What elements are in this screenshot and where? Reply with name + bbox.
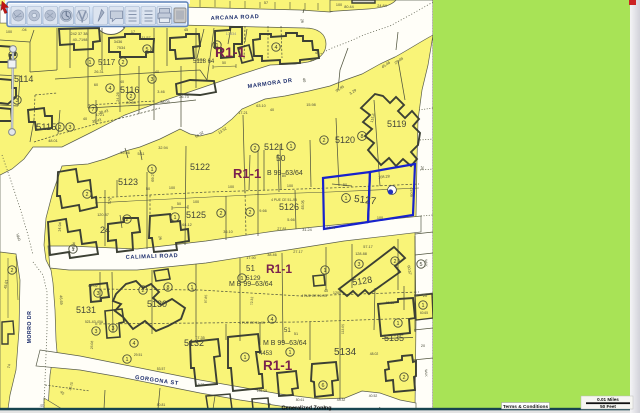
svg-text:45: 45 <box>184 28 188 32</box>
svg-text:8: 8 <box>361 134 364 140</box>
svg-text:5125: 5125 <box>186 210 206 220</box>
svg-text:40: 40 <box>324 289 328 293</box>
svg-text:60.57: 60.57 <box>410 187 415 197</box>
svg-text:26.08: 26.08 <box>90 341 94 350</box>
svg-text:5131: 5131 <box>76 305 96 315</box>
svg-text:29.51: 29.51 <box>134 353 143 357</box>
svg-text:100: 100 <box>193 200 199 204</box>
svg-text:74: 74 <box>7 364 12 369</box>
svg-text:1: 1 <box>244 355 247 361</box>
svg-text:2: 2 <box>59 125 62 131</box>
svg-text:2: 2 <box>220 211 223 217</box>
svg-text:120.87: 120.87 <box>97 213 109 217</box>
svg-text:26: 26 <box>300 19 305 24</box>
svg-text:4453: 4453 <box>259 351 273 357</box>
svg-text:MORRO DR: MORRO DR <box>27 311 33 344</box>
svg-text:50: 50 <box>222 61 226 65</box>
svg-text:4: 4 <box>275 45 278 51</box>
svg-text:4 PUE CE 51–95: 4 PUE CE 51–95 <box>301 294 327 298</box>
svg-text:11.57: 11.57 <box>141 36 150 40</box>
svg-text:5119: 5119 <box>387 119 406 129</box>
svg-text:100: 100 <box>287 184 293 188</box>
svg-text:17: 17 <box>131 30 135 34</box>
svg-text:3: 3 <box>151 77 154 83</box>
svg-text:5130: 5130 <box>147 299 167 309</box>
svg-text:48.02: 48.02 <box>370 352 379 356</box>
svg-text:100: 100 <box>377 216 383 220</box>
svg-text:1: 1 <box>324 268 327 274</box>
svg-text:1: 1 <box>126 357 129 363</box>
svg-text:Generalized Zoning: Generalized Zoning <box>281 405 331 411</box>
svg-text:3.46: 3.46 <box>157 90 164 94</box>
svg-text:5.11: 5.11 <box>137 152 144 156</box>
svg-text:1721: 1721 <box>96 113 104 117</box>
svg-text:2: 2 <box>323 138 326 144</box>
svg-text:1: 1 <box>397 321 400 327</box>
svg-text:R1-1: R1-1 <box>215 44 246 60</box>
svg-text:24.26: 24.26 <box>116 92 120 102</box>
svg-text:26.73: 26.73 <box>179 95 189 99</box>
svg-text:523–63–05A: 523–63–05A <box>85 320 104 324</box>
svg-text:113.05: 113.05 <box>341 324 345 334</box>
svg-text:4: 4 <box>109 86 112 92</box>
svg-text:9.66: 9.66 <box>259 209 266 213</box>
svg-text:50: 50 <box>343 183 347 187</box>
svg-text:2: 2 <box>254 146 257 152</box>
svg-text:M B 99–63/64: M B 99–63/64 <box>263 340 307 347</box>
svg-text:62.02: 62.02 <box>88 284 98 288</box>
svg-text:64.12: 64.12 <box>182 223 192 227</box>
svg-text:2: 2 <box>11 268 14 274</box>
svg-text:32.94: 32.94 <box>158 146 168 150</box>
svg-text:24: 24 <box>100 225 110 235</box>
svg-text:2: 2 <box>403 375 406 381</box>
svg-text:128.88: 128.88 <box>355 252 367 256</box>
svg-text:17.21: 17.21 <box>238 111 248 115</box>
svg-text:05.84: 05.84 <box>196 58 205 62</box>
svg-text:3: 3 <box>112 326 115 332</box>
svg-text:M B 99–63/64: M B 99–63/64 <box>229 281 273 288</box>
svg-text:60: 60 <box>94 83 98 87</box>
svg-text:43.32: 43.32 <box>337 398 346 402</box>
svg-text:31.24: 31.24 <box>302 228 312 232</box>
svg-text:40: 40 <box>310 58 314 62</box>
svg-text:100: 100 <box>228 185 234 189</box>
svg-text:20.89: 20.89 <box>126 101 136 105</box>
svg-text:80.44: 80.44 <box>344 5 354 9</box>
svg-text:46.65: 46.65 <box>59 295 64 305</box>
svg-text:38.05: 38.05 <box>160 100 170 104</box>
svg-text:4.84: 4.84 <box>72 242 77 250</box>
svg-text:3: 3 <box>358 262 361 268</box>
svg-text:80: 80 <box>282 174 286 178</box>
svg-text:80.81: 80.81 <box>157 403 166 407</box>
svg-text:242 37 38: 242 37 38 <box>71 32 88 36</box>
svg-text:14.94: 14.94 <box>58 222 63 232</box>
svg-text:2: 2 <box>86 192 89 198</box>
svg-text:1: 1 <box>422 303 425 309</box>
svg-text:36.10: 36.10 <box>223 230 233 234</box>
svg-text:38.46: 38.46 <box>267 253 277 257</box>
svg-text:80.61: 80.61 <box>296 398 305 402</box>
svg-text:51: 51 <box>284 328 291 334</box>
svg-text:20: 20 <box>423 294 427 298</box>
svg-text:40: 40 <box>40 403 45 408</box>
svg-text:20: 20 <box>421 344 425 348</box>
svg-text:50: 50 <box>146 187 150 191</box>
svg-text:48.05: 48.05 <box>301 200 305 210</box>
svg-text:3: 3 <box>69 125 72 131</box>
svg-text:1: 1 <box>345 196 348 202</box>
svg-text:39.56: 39.56 <box>120 151 130 155</box>
svg-text:17834: 17834 <box>226 32 237 36</box>
svg-text:45: 45 <box>315 51 319 55</box>
svg-text:5134: 5134 <box>334 347 357 358</box>
svg-text:40.52: 40.52 <box>369 394 378 398</box>
svg-text:50: 50 <box>276 153 286 163</box>
svg-text:32.47: 32.47 <box>326 226 336 230</box>
svg-text:1: 1 <box>174 215 177 221</box>
svg-text:2: 2 <box>394 259 397 265</box>
svg-text:40: 40 <box>270 108 274 112</box>
svg-text:131.05: 131.05 <box>257 389 267 393</box>
svg-text:1: 1 <box>191 285 194 291</box>
svg-text:0.01 Miles: 0.01 Miles <box>597 397 619 402</box>
svg-text:9.32: 9.32 <box>198 383 205 387</box>
svg-text:1: 1 <box>151 167 154 173</box>
svg-text:5: 5 <box>420 262 423 268</box>
svg-text:72.32: 72.32 <box>250 297 254 306</box>
svg-text:5117: 5117 <box>98 58 116 67</box>
svg-text:120: 120 <box>333 291 339 295</box>
svg-text:4: 4 <box>271 317 274 323</box>
svg-text:53.57: 53.57 <box>157 367 166 371</box>
svg-text:90.65: 90.65 <box>386 301 394 305</box>
svg-text:51: 51 <box>294 332 298 336</box>
svg-text:100: 100 <box>169 186 175 190</box>
svg-text:3: 3 <box>97 291 100 297</box>
svg-text:.04: .04 <box>21 28 26 32</box>
svg-text:R1-1: R1-1 <box>266 262 292 276</box>
svg-text:5121: 5121 <box>264 142 284 152</box>
svg-text:3: 3 <box>16 98 19 104</box>
svg-text:50: 50 <box>177 202 181 206</box>
svg-text:57: 57 <box>264 1 268 5</box>
svg-text:5126: 5126 <box>279 202 299 212</box>
svg-text:60.65: 60.65 <box>420 311 428 315</box>
svg-text:1: 1 <box>289 350 292 356</box>
svg-text:2: 2 <box>142 288 145 294</box>
svg-text:5120: 5120 <box>335 135 355 145</box>
svg-text:17.90: 17.90 <box>246 256 256 260</box>
svg-text:7: 7 <box>92 107 95 113</box>
svg-text:4: 4 <box>133 341 136 347</box>
svg-text:50 Feet: 50 Feet <box>600 404 616 409</box>
svg-text:Terms & Conditions: Terms & Conditions <box>503 404 549 410</box>
svg-text:5115: 5115 <box>36 122 56 133</box>
svg-text:24.84: 24.84 <box>377 4 387 8</box>
svg-text:40: 40 <box>302 78 307 83</box>
svg-text:R1-1: R1-1 <box>263 358 293 373</box>
svg-text:69.27: 69.27 <box>151 172 155 182</box>
svg-text:51: 51 <box>246 264 255 273</box>
svg-text:6: 6 <box>322 383 325 389</box>
svg-text:57.17: 57.17 <box>363 245 373 249</box>
svg-text:5123: 5123 <box>118 177 138 187</box>
svg-text:1: 1 <box>290 144 293 150</box>
svg-text:63.10: 63.10 <box>256 104 266 108</box>
svg-text:48.01: 48.01 <box>48 139 58 143</box>
svg-text:4 PUE CE 51–95: 4 PUE CE 51–95 <box>239 321 265 325</box>
svg-text:WLK: WLK <box>424 369 428 377</box>
svg-text:5114: 5114 <box>14 74 33 84</box>
svg-text:1: 1 <box>89 60 92 66</box>
svg-text:WLK: WLK <box>424 259 428 267</box>
svg-text:8: 8 <box>167 285 170 291</box>
svg-text:26.31: 26.31 <box>94 70 104 74</box>
svg-text:15.98: 15.98 <box>306 103 316 107</box>
svg-text:57.35: 57.35 <box>195 336 205 340</box>
svg-text:100: 100 <box>6 30 12 34</box>
svg-text:100: 100 <box>336 3 342 7</box>
svg-text:5116: 5116 <box>120 85 139 95</box>
svg-text:97.85: 97.85 <box>204 295 208 304</box>
svg-text:40: 40 <box>155 70 159 74</box>
svg-text:3436: 3436 <box>114 40 122 44</box>
svg-text:27.81: 27.81 <box>277 227 287 231</box>
svg-text:4 PUE CE 51–95: 4 PUE CE 51–95 <box>271 198 297 202</box>
svg-text:5122: 5122 <box>190 162 210 172</box>
svg-text:2: 2 <box>126 217 129 223</box>
svg-text:3: 3 <box>95 329 98 335</box>
svg-text:40: 40 <box>120 80 124 84</box>
svg-text:27.17: 27.17 <box>293 250 303 254</box>
svg-text:40: 40 <box>83 117 87 121</box>
svg-text:26: 26 <box>420 166 424 171</box>
svg-text:2: 2 <box>249 210 252 216</box>
svg-text:5: 5 <box>146 47 149 53</box>
svg-text:2: 2 <box>122 60 125 66</box>
svg-text:R1-1: R1-1 <box>233 166 261 181</box>
svg-text:40–7198: 40–7198 <box>73 38 88 42</box>
svg-text:7534: 7534 <box>117 46 125 50</box>
svg-text:5.66: 5.66 <box>287 218 294 222</box>
